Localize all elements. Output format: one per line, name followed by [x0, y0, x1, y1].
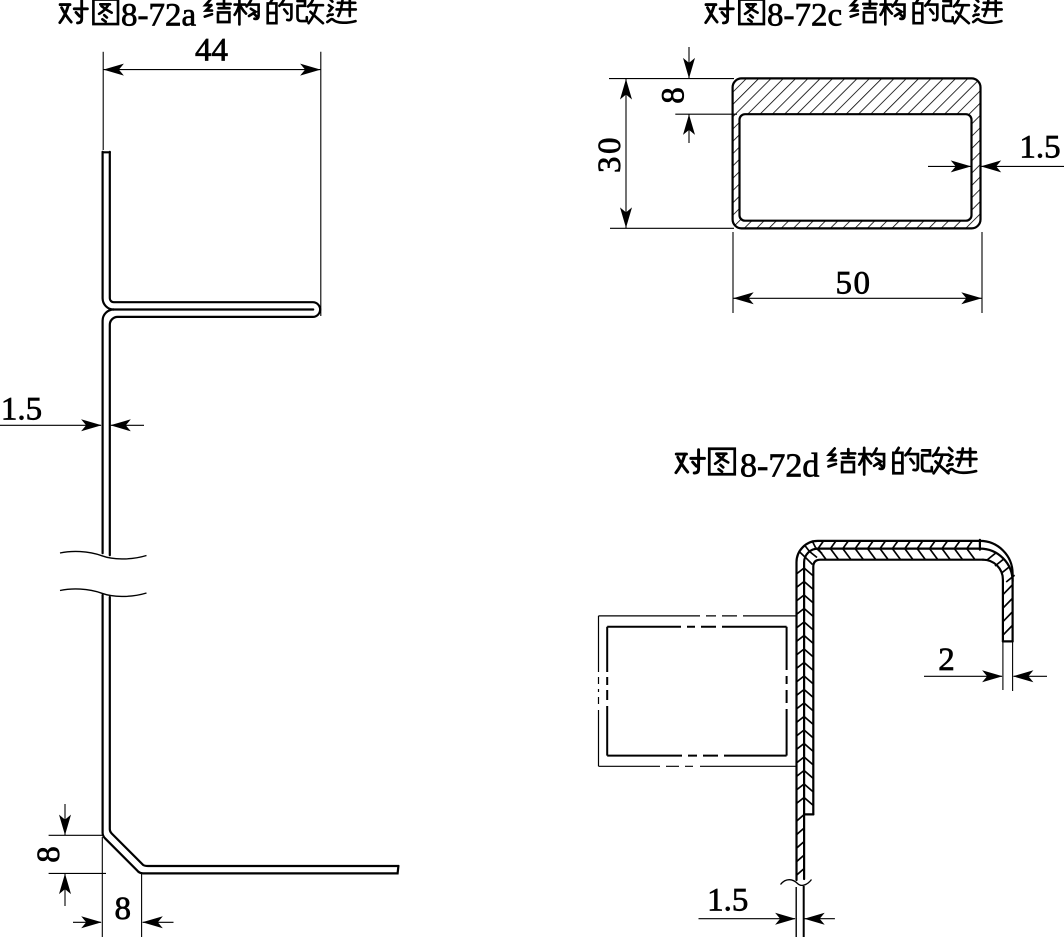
svg-text:1.5: 1.5 — [1019, 130, 1060, 166]
svg-text:1.5: 1.5 — [1, 392, 42, 428]
svg-text:50: 50 — [836, 266, 872, 302]
svg-text:30: 30 — [592, 135, 628, 173]
svg-text:8-72a: 8-72a — [121, 0, 196, 34]
svg-text:8: 8 — [656, 87, 692, 104]
svg-text:2: 2 — [938, 642, 955, 678]
svg-text:8: 8 — [115, 891, 132, 927]
svg-text:8: 8 — [31, 846, 67, 863]
svg-text:8-72c: 8-72c — [767, 0, 842, 34]
svg-text:8-72d: 8-72d — [740, 448, 819, 485]
svg-text:1.5: 1.5 — [707, 883, 748, 919]
svg-text:44: 44 — [195, 33, 228, 69]
